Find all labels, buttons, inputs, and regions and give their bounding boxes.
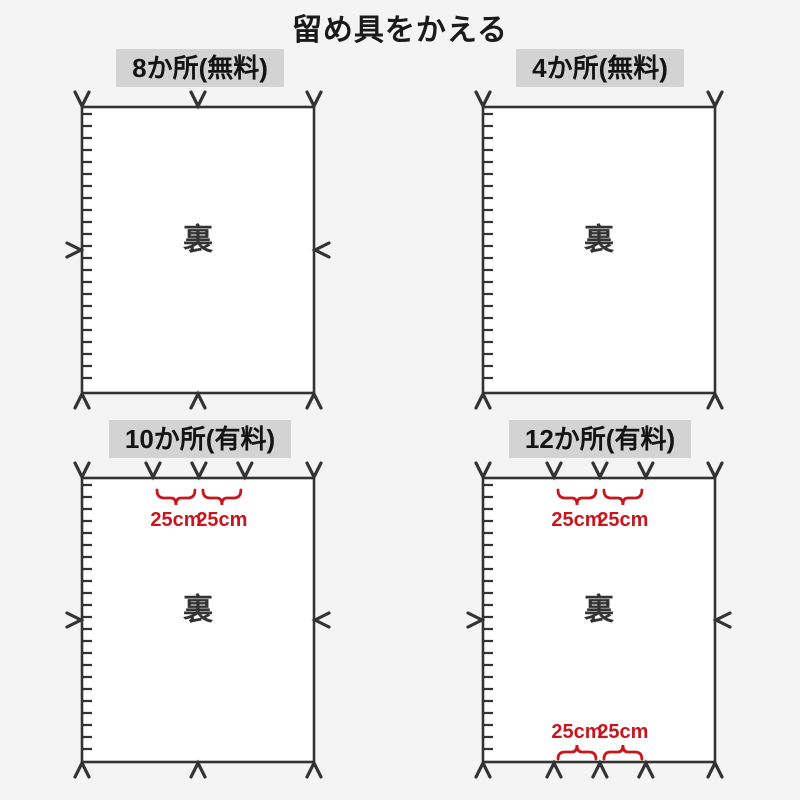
fastener-arrow-top [593,463,607,477]
fastener-arrow-top [75,92,89,106]
panel-header-wrap-12: 12か所(有料) [400,420,800,458]
fastener-arrow-left [67,243,81,257]
fastener-diagram-4-spots: 裏 [453,85,745,415]
fastener-arrow-top [476,92,490,106]
fastener-arrow-bottom [307,763,321,777]
fastener-arrow-left [468,613,482,627]
fastener-arrow-bottom [75,394,89,408]
fastener-arrow-bottom [547,763,561,777]
back-side-label: 裏 [584,223,615,257]
fastener-arrow-top [238,463,252,477]
distance-label-top: 25cm [150,509,201,531]
fastener-arrow-bottom [639,763,653,777]
fastener-arrow-bottom [75,763,89,777]
panel-header-wrap-10: 10か所(有料) [0,420,400,458]
fastener-arrow-top [307,92,321,106]
fastener-arrow-right [315,243,329,257]
panel-header-12-spots: 12か所(有料) [509,420,691,458]
page-title: 留め具をかえる [0,5,800,49]
fastener-arrow-bottom [476,763,490,777]
distance-label-top: 25cm [196,509,247,531]
fastener-arrow-bottom [708,394,722,408]
back-side-label: 裏 [183,223,214,257]
fastener-arrow-top [639,463,653,477]
fastener-arrow-top [146,463,160,477]
fastener-arrow-top [708,92,722,106]
fastener-arrow-top [476,463,490,477]
fastener-arrow-right [315,613,329,627]
back-side-label: 裏 [183,593,214,627]
fastener-arrow-top [307,463,321,477]
distance-label-bottom: 25cm [597,721,648,743]
fastener-diagram-12-spots: 裏25cm25cm25cm25cm [453,456,745,784]
fastener-arrow-bottom [476,394,490,408]
distance-label-top: 25cm [551,509,602,531]
fastener-diagram-8-spots: 裏 [52,85,344,415]
fastener-arrow-top [192,463,206,477]
fastener-arrow-right [716,613,730,627]
panel-header-4-spots: 4か所(無料) [516,49,684,87]
panel-header-10-spots: 10か所(有料) [109,420,291,458]
fastener-arrow-top [191,92,205,106]
panel-header-wrap-8: 8か所(無料) [0,49,400,87]
fastener-arrow-left [67,613,81,627]
fastener-arrow-bottom [593,763,607,777]
panel-header-8-spots: 8か所(無料) [116,49,284,87]
panel-header-wrap-4: 4か所(無料) [400,49,800,87]
fastener-arrow-top [547,463,561,477]
back-side-label: 裏 [584,593,615,627]
distance-label-bottom: 25cm [551,721,602,743]
fastener-arrow-bottom [191,394,205,408]
fastener-arrow-top [708,463,722,477]
fastener-arrow-bottom [307,394,321,408]
fastener-arrow-bottom [708,763,722,777]
fastener-diagram-10-spots: 裏25cm25cm [52,456,344,784]
fastener-arrow-bottom [191,763,205,777]
fastener-arrow-top [75,463,89,477]
distance-label-top: 25cm [597,509,648,531]
